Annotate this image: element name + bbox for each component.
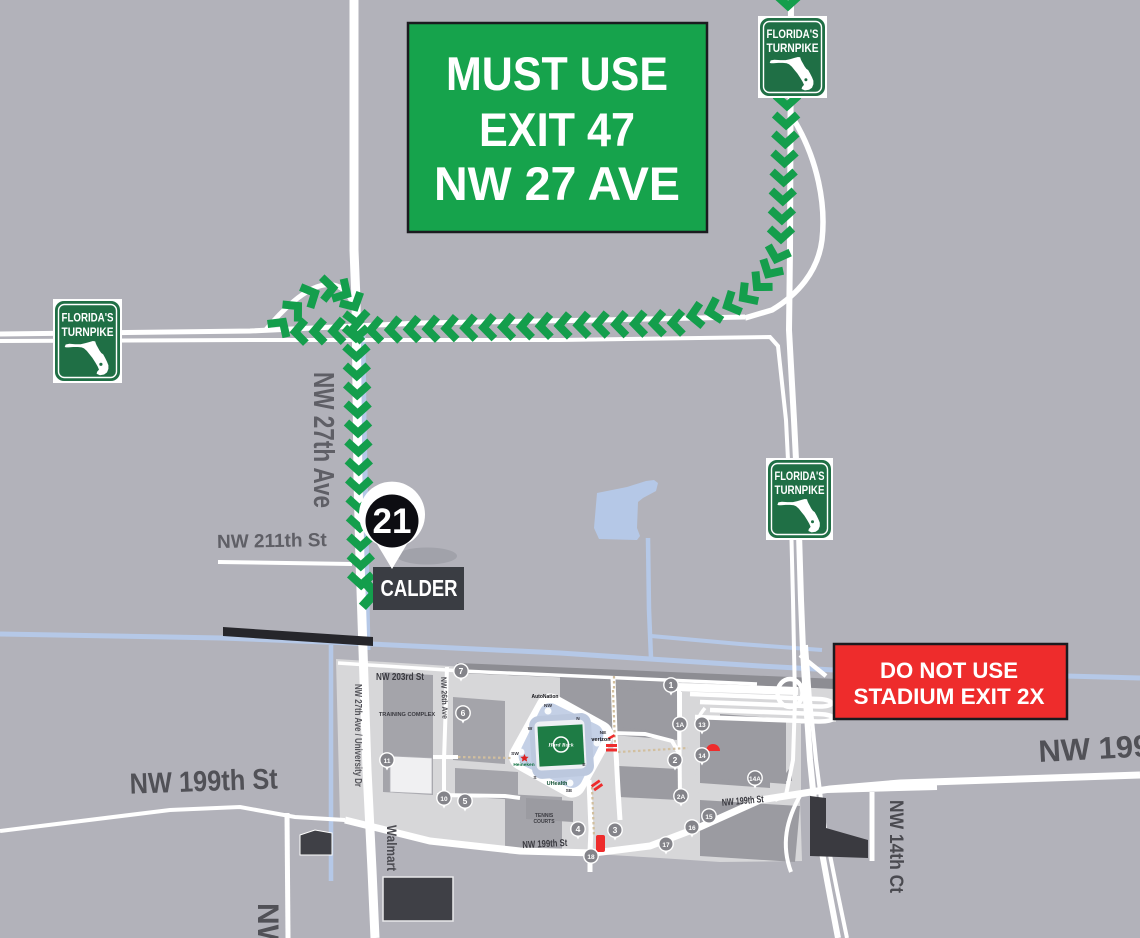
svg-text:6: 6 bbox=[461, 708, 466, 718]
svg-text:3: 3 bbox=[613, 825, 618, 835]
svg-text:NE: NE bbox=[600, 730, 607, 736]
svg-text:13: 13 bbox=[698, 722, 706, 729]
svg-text:NW 27th Ave: NW 27th Ave bbox=[307, 372, 339, 508]
svg-text:UHealth: UHealth bbox=[547, 781, 568, 787]
svg-text:16: 16 bbox=[688, 825, 696, 832]
svg-text:FLORIDA'S: FLORIDA'S bbox=[775, 469, 825, 483]
svg-text:Hard Rock: Hard Rock bbox=[547, 743, 574, 749]
svg-text:NW 26th Ave: NW 26th Ave bbox=[439, 677, 449, 720]
svg-text:Heineken: Heineken bbox=[513, 762, 534, 768]
svg-text:NW 14th Ct: NW 14th Ct bbox=[885, 800, 906, 894]
svg-text:14A: 14A bbox=[749, 776, 761, 783]
svg-text:DO NOT USE: DO NOT USE bbox=[880, 658, 1018, 683]
svg-text:18: 18 bbox=[587, 854, 595, 861]
svg-text:FLORIDA'S: FLORIDA'S bbox=[767, 27, 819, 41]
svg-text:SE: SE bbox=[566, 788, 573, 794]
svg-text:TURNPIKE: TURNPIKE bbox=[62, 325, 114, 339]
svg-text:4: 4 bbox=[576, 824, 581, 834]
svg-text:AutoNation: AutoNation bbox=[532, 694, 559, 700]
svg-text:2: 2 bbox=[673, 755, 678, 765]
svg-text:COURTS: COURTS bbox=[533, 819, 555, 825]
svg-text:W: W bbox=[528, 726, 533, 732]
svg-text:17: 17 bbox=[662, 842, 670, 849]
svg-text:11: 11 bbox=[384, 758, 391, 765]
svg-text:verizon: verizon bbox=[591, 737, 611, 743]
svg-text:STADIUM EXIT 2X: STADIUM EXIT 2X bbox=[854, 684, 1045, 709]
svg-text:NW 203rd St: NW 203rd St bbox=[376, 671, 424, 683]
svg-text:FLORIDA'S: FLORIDA'S bbox=[62, 311, 114, 325]
svg-text:NW 27th Ave: NW 27th Ave bbox=[251, 903, 284, 938]
svg-text:7: 7 bbox=[459, 666, 464, 676]
svg-text:NW: NW bbox=[544, 703, 552, 709]
svg-text:TURNPIKE: TURNPIKE bbox=[775, 483, 825, 497]
svg-text:NW 211th St: NW 211th St bbox=[217, 530, 328, 553]
svg-text:14: 14 bbox=[698, 753, 706, 760]
svg-text:EXIT 47: EXIT 47 bbox=[479, 103, 635, 156]
svg-text:CALDER: CALDER bbox=[381, 575, 458, 601]
svg-text:TURNPIKE: TURNPIKE bbox=[767, 41, 819, 55]
svg-text:NW 27th Ave / University Dr: NW 27th Ave / University Dr bbox=[352, 684, 363, 787]
svg-text:1A: 1A bbox=[676, 722, 685, 729]
svg-text:1: 1 bbox=[669, 680, 674, 690]
svg-text:SW: SW bbox=[511, 751, 519, 757]
svg-text:15: 15 bbox=[705, 814, 713, 821]
svg-text:21: 21 bbox=[373, 502, 412, 541]
svg-text:N: N bbox=[576, 716, 580, 722]
svg-text:Walmart: Walmart bbox=[384, 825, 400, 871]
svg-text:10: 10 bbox=[440, 796, 448, 803]
svg-text:NW 199th St: NW 199th St bbox=[129, 763, 278, 800]
svg-text:2A: 2A bbox=[677, 794, 686, 801]
svg-text:5: 5 bbox=[463, 796, 468, 806]
svg-text:TRAINING COMPLEX: TRAINING COMPLEX bbox=[379, 712, 436, 718]
svg-text:NW 27 AVE: NW 27 AVE bbox=[434, 157, 680, 210]
svg-text:MUST USE: MUST USE bbox=[446, 47, 668, 100]
